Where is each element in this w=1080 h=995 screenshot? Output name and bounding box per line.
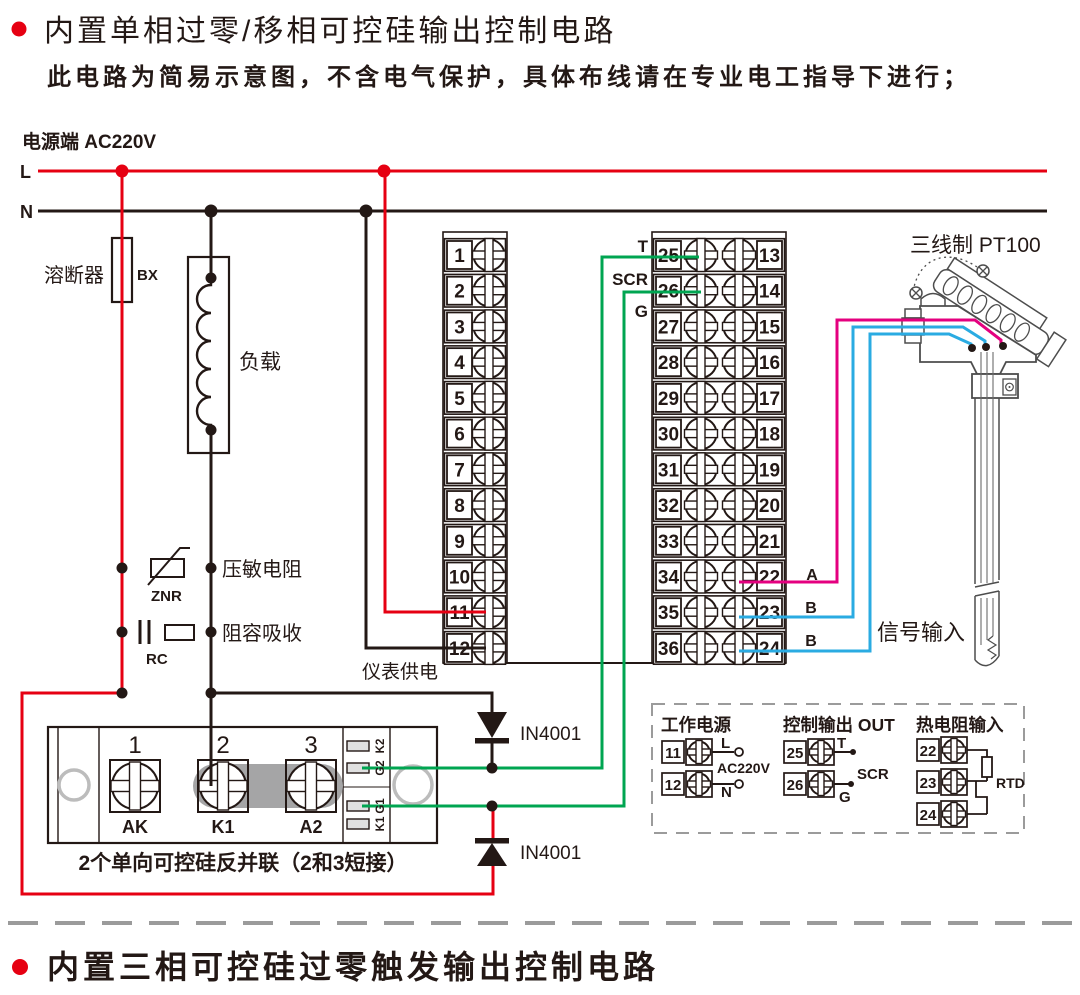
terminal-row-left: 8 (445, 489, 506, 522)
svg-text:26: 26 (787, 777, 804, 794)
svg-text:9: 9 (454, 532, 465, 553)
svg-text:24: 24 (759, 639, 781, 660)
terminal-row-right: 3523 (654, 596, 785, 629)
terminal-row-right: 2513 (654, 239, 785, 272)
svg-text:6: 6 (454, 425, 465, 446)
load-label: 负载 (239, 351, 281, 374)
screw-icon (473, 346, 506, 379)
scr-module-caption: 2个单向可控硅反并联（2和3短接） (78, 851, 407, 875)
svg-text:8: 8 (454, 496, 465, 517)
screw-icon (685, 346, 718, 379)
terminal-row-left: 3 (445, 310, 506, 343)
terminal-row-left: 4 (445, 346, 506, 379)
svg-text:32: 32 (658, 496, 679, 517)
screw-icon (473, 310, 506, 343)
scr-name-AK: AK (122, 817, 148, 837)
screw-icon (723, 310, 756, 343)
line-L-label: L (20, 162, 31, 182)
svg-text:25: 25 (787, 745, 804, 762)
module-pin-label: G1 (375, 798, 387, 814)
screw-icon (723, 381, 756, 414)
svg-text:21: 21 (759, 532, 781, 553)
snubber-label: 阻容吸收 (222, 622, 302, 645)
terminal-row-right: 2715 (654, 310, 785, 343)
scr-name-A2: A2 (299, 817, 322, 837)
svg-text:28: 28 (658, 353, 679, 374)
svg-text:35: 35 (658, 603, 680, 624)
svg-text:14: 14 (759, 282, 781, 303)
svg-text:22: 22 (920, 743, 937, 760)
detail-power-title: 工作电源 (661, 715, 731, 735)
screw-icon (810, 773, 833, 796)
rtd-element-icon (988, 636, 996, 659)
screw-icon (723, 274, 756, 307)
screw-icon (723, 489, 756, 522)
terminal-row-right: 3220 (654, 489, 785, 522)
svg-text:24: 24 (920, 807, 937, 824)
diode-bottom-icon (475, 838, 509, 866)
screw-icon (685, 631, 718, 664)
svg-text:11: 11 (665, 745, 681, 762)
meter-supply-label: 仪表供电 (362, 661, 438, 683)
mini-terminal: 23 (917, 769, 967, 795)
screw-icon (473, 560, 506, 593)
mini-terminal: 24 (917, 801, 967, 827)
terminal-row-right: 3321 (654, 524, 785, 557)
svg-text:18: 18 (759, 425, 780, 446)
footer-bullet-icon (12, 959, 28, 975)
wire-B1-label: B (805, 600, 817, 617)
terminal-row-right: 2816 (654, 346, 785, 379)
varistor-code: ZNR (151, 588, 182, 605)
screw-icon (473, 239, 506, 272)
detail-power-voltage: AC220V (717, 760, 771, 776)
svg-text:27: 27 (658, 317, 679, 338)
mini-terminal: 22 (917, 737, 967, 763)
svg-text:5: 5 (454, 389, 465, 410)
wire-B2-label: B (805, 633, 817, 650)
scr-terminal-2: 2 (216, 732, 229, 759)
svg-text:4: 4 (454, 353, 465, 374)
detail-output-T: T (837, 735, 846, 752)
detail-power-N: N (721, 784, 732, 801)
module-pin-label: G2 (375, 760, 387, 775)
pin-SCR-label: SCR (612, 270, 648, 289)
terminal-row-left: 7 (445, 453, 506, 486)
detail-box-terminals: 11122526222324 (662, 737, 967, 827)
screw-icon (688, 773, 711, 796)
screw-icon (943, 803, 966, 826)
page-subtitle: 此电路为简易示意图，不含电气保护，具体布线请在专业电工指导下进行； (47, 63, 971, 91)
power-source-label: 电源端 AC220V (22, 130, 156, 153)
terminal-row-left: 1 (445, 239, 506, 272)
scr-terminal-1: 1 (128, 732, 141, 759)
module-pin-label: K1 (375, 816, 387, 831)
terminal-row-right: 3119 (654, 453, 785, 486)
svg-text:29: 29 (658, 389, 679, 410)
fuse-code: BX (137, 267, 158, 284)
screw-icon (723, 417, 756, 450)
sensor-title: 三线制 PT100 (910, 234, 1041, 257)
screw-icon (685, 489, 718, 522)
wiring-diagram-page: 1234567891011122513261427152816291730183… (0, 0, 1080, 995)
detail-rtd-code: RTD (996, 775, 1025, 791)
svg-text:33: 33 (658, 532, 679, 553)
footer-title: 内置三相可控硅过零触发输出控制电路 (47, 949, 659, 985)
screw-icon (473, 417, 506, 450)
svg-text:31: 31 (658, 460, 680, 481)
terminal-row-left: 9 (445, 524, 506, 557)
svg-text:12: 12 (665, 777, 682, 794)
svg-text:30: 30 (658, 425, 679, 446)
screw-icon (723, 596, 756, 629)
circuit-diagram: 1234567891011122513261427152816291730183… (0, 0, 1080, 995)
page-title: 内置单相过零/移相可控硅输出控制电路 (44, 15, 616, 48)
terminal-row-right: 3018 (654, 417, 785, 450)
scr-name-K1: K1 (211, 817, 234, 837)
varistor-label: 压敏电阻 (222, 558, 302, 581)
svg-text:17: 17 (759, 389, 780, 410)
wire-gate-G2 (362, 257, 699, 768)
detail-output-SCR: SCR (857, 766, 889, 783)
snubber-code: RC (146, 651, 168, 668)
svg-text:10: 10 (449, 567, 470, 588)
screw-icon (685, 381, 718, 414)
diode-bottom-label: IN4001 (520, 843, 581, 864)
screw-icon (723, 346, 756, 379)
diode-top-label: IN4001 (520, 724, 581, 745)
screw-icon (473, 453, 506, 486)
terminal-row-right: 3624 (654, 631, 785, 664)
screw-icon (685, 524, 718, 557)
svg-text:1: 1 (454, 246, 465, 267)
mini-terminal: 11 (662, 739, 712, 765)
module-pin-label: K2 (375, 739, 387, 754)
screw-icon (685, 596, 718, 629)
detail-output-title: 控制输出 OUT (783, 715, 895, 735)
detail-output-G: G (839, 789, 851, 806)
screw-icon (685, 310, 718, 343)
pt100-sensor (902, 256, 1070, 666)
screw-icon (685, 239, 718, 272)
screw-icon (723, 453, 756, 486)
svg-text:13: 13 (759, 246, 780, 267)
screw-icon (943, 771, 966, 794)
svg-text:23: 23 (920, 775, 937, 792)
header-bullet-icon (12, 22, 27, 37)
fuse-label: 溶断器 (44, 264, 104, 287)
svg-text:23: 23 (759, 603, 780, 624)
varistor-symbol (148, 548, 190, 585)
screw-icon (473, 524, 506, 557)
screw-icon (723, 524, 756, 557)
detail-power-L: L (721, 735, 730, 752)
screw-icon (723, 631, 756, 664)
svg-text:22: 22 (759, 567, 780, 588)
rtd-resistor-icon (982, 757, 992, 777)
screw-icon (473, 274, 506, 307)
signal-input-label: 信号输入 (877, 620, 965, 645)
mini-terminal: 26 (784, 771, 834, 797)
screw-icon (723, 560, 756, 593)
terminal-row-right: 2917 (654, 381, 785, 414)
detail-rtd-title: 热电阻输入 (916, 715, 1004, 735)
svg-text:2: 2 (454, 282, 465, 303)
rc-snubber-symbol (140, 620, 194, 644)
screw-icon (943, 739, 966, 762)
screw-icon (685, 560, 718, 593)
detail-output-wires (834, 749, 856, 787)
pin-G-label: G (635, 302, 648, 321)
svg-text:11: 11 (449, 603, 470, 624)
screw-icon (723, 239, 756, 272)
svg-text:16: 16 (759, 353, 780, 374)
terminal-row-left: 2 (445, 274, 506, 307)
screw-icon (685, 417, 718, 450)
sensor-fitting (921, 294, 945, 307)
svg-text:19: 19 (759, 460, 780, 481)
screw-icon (199, 762, 247, 810)
screw-icon (473, 381, 506, 414)
screw-icon (688, 741, 711, 764)
terminal-row-right: 3422 (654, 560, 785, 593)
screw-icon (473, 489, 506, 522)
svg-text:20: 20 (759, 496, 780, 517)
screw-icon (287, 762, 335, 810)
screw-icon (685, 453, 718, 486)
diode-top-icon (475, 712, 509, 744)
scr-module-screws (111, 762, 335, 810)
scr-terminal-3: 3 (304, 732, 317, 759)
pin-T-label: T (638, 237, 649, 256)
terminal-row-left: 10 (445, 560, 506, 593)
screw-icon (111, 762, 159, 810)
svg-text:34: 34 (658, 567, 680, 588)
screw-icon (810, 741, 833, 764)
terminal-row-left: 5 (445, 381, 506, 414)
mini-terminal: 12 (662, 771, 712, 797)
mini-terminal: 25 (784, 739, 834, 765)
wire-A-label: A (806, 567, 818, 584)
svg-text:15: 15 (759, 317, 781, 338)
line-N-label: N (20, 202, 33, 222)
svg-text:3: 3 (454, 317, 465, 338)
terminal-row-left: 6 (445, 417, 506, 450)
svg-text:7: 7 (454, 460, 465, 481)
svg-text:36: 36 (658, 639, 679, 660)
